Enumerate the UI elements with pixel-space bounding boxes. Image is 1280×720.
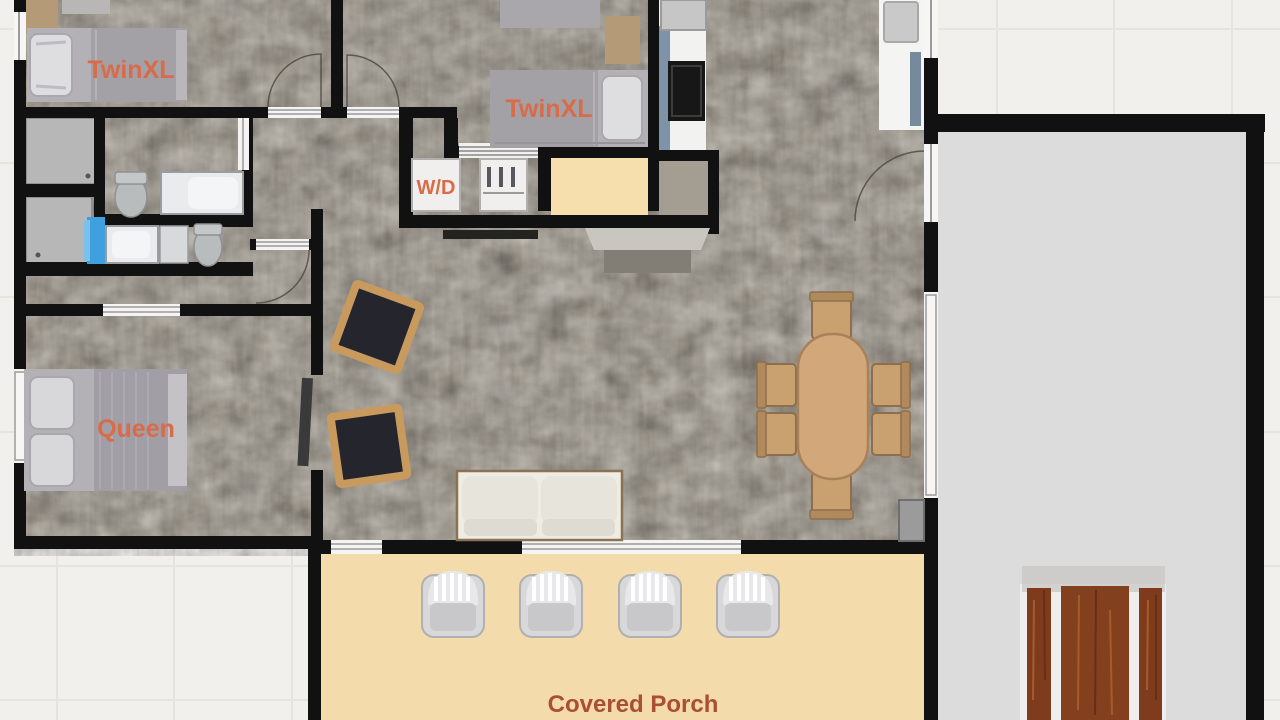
- svg-text:Queen: Queen: [97, 415, 175, 443]
- svg-text:Covered Porch: Covered Porch: [548, 691, 719, 718]
- svg-text:W/D: W/D: [417, 177, 456, 199]
- svg-text:TwinXL: TwinXL: [505, 95, 592, 123]
- svg-text:TwinXL: TwinXL: [87, 56, 174, 84]
